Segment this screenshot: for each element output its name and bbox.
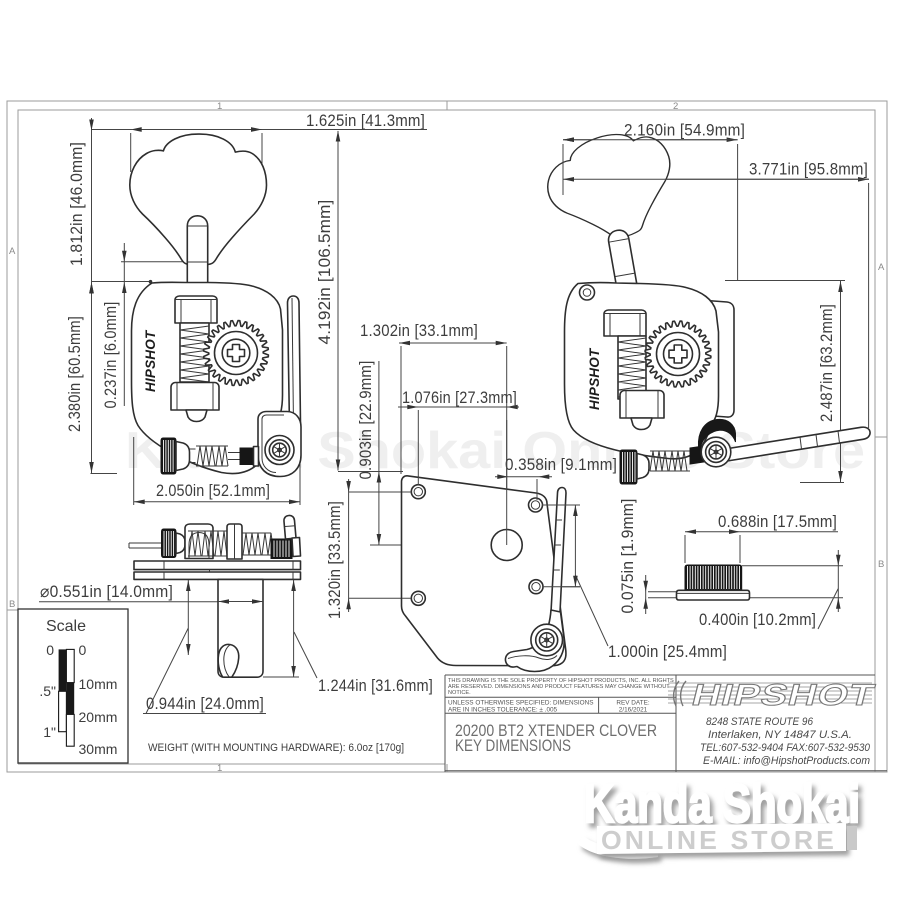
svg-text:1.625in [41.3mm]: 1.625in [41.3mm] (306, 111, 425, 130)
svg-text:KEY DIMENSIONS: KEY DIMENSIONS (455, 736, 571, 755)
svg-text:1.320in [33.5mm]: 1.320in [33.5mm] (325, 501, 344, 619)
svg-text:HIPSHOT: HIPSHOT (143, 329, 158, 392)
svg-text:A: A (878, 262, 885, 273)
svg-text:ARE IN INCHES TOLERANCE: ± .00: ARE IN INCHES TOLERANCE: ± .005 (448, 707, 558, 714)
svg-text:ARE RESERVED. DIMENSIONS AND P: ARE RESERVED. DIMENSIONS AND PRODUCT FEA… (448, 684, 670, 690)
svg-text:0.237in [6.0mm]: 0.237in [6.0mm] (101, 302, 120, 409)
svg-text:0.944in [24.0mm]: 0.944in [24.0mm] (146, 694, 264, 713)
svg-text:1.302in [33.1mm]: 1.302in [33.1mm] (360, 321, 478, 340)
svg-text:WEIGHT (WITH MOUNTING HARDWARE: WEIGHT (WITH MOUNTING HARDWARE): 6.0oz [… (148, 742, 404, 754)
svg-text:1.000in [25.4mm]: 1.000in [25.4mm] (608, 642, 727, 661)
svg-text:3.771in [95.8mm]: 3.771in [95.8mm] (749, 160, 868, 179)
svg-text:0.400in [10.2mm]: 0.400in [10.2mm] (699, 610, 816, 629)
svg-text:1: 1 (217, 763, 222, 774)
svg-text:2.487in [63.2mm]: 2.487in [63.2mm] (817, 304, 836, 422)
svg-text:.5": .5" (39, 683, 56, 699)
svg-text:E-MAIL: info@HipshotProducts.c: E-MAIL: info@HipshotProducts.com (703, 755, 870, 767)
svg-text:ONLINE STORE: ONLINE STORE (601, 825, 837, 855)
svg-text:1.812in [46.0mm]: 1.812in [46.0mm] (67, 142, 86, 266)
svg-text:2.050in [52.1mm]: 2.050in [52.1mm] (156, 481, 270, 500)
svg-text:REV DATE:: REV DATE: (616, 700, 649, 707)
svg-text:1.244in [31.6mm]: 1.244in [31.6mm] (318, 676, 433, 695)
svg-text:B: B (878, 559, 884, 570)
svg-text:4.192in [106.5mm]: 4.192in [106.5mm] (315, 200, 334, 345)
svg-text:0.688in [17.5mm]: 0.688in [17.5mm] (718, 512, 837, 531)
svg-text:B: B (9, 599, 15, 610)
svg-text:0: 0 (46, 642, 54, 658)
svg-text:HIPSHOT: HIPSHOT (587, 347, 602, 410)
svg-text:10mm: 10mm (79, 676, 118, 692)
svg-text:0: 0 (79, 642, 87, 658)
svg-text:1: 1 (217, 101, 222, 112)
svg-text:1.076in [27.3mm]: 1.076in [27.3mm] (402, 388, 517, 407)
svg-text:1": 1" (43, 724, 56, 740)
svg-text:8248 STATE ROUTE 96: 8248 STATE ROUTE 96 (706, 716, 814, 728)
svg-text:20mm: 20mm (79, 709, 118, 725)
svg-text:2/16/2021: 2/16/2021 (619, 707, 648, 714)
svg-text:2.160in [54.9mm]: 2.160in [54.9mm] (624, 121, 745, 140)
svg-text:0.358in [9.1mm]: 0.358in [9.1mm] (505, 455, 617, 474)
svg-text:UNLESS OTHERWISE SPECIFIED: DI: UNLESS OTHERWISE SPECIFIED: DIMENSIONS (448, 700, 593, 707)
svg-text:⌀0.551in [14.0mm]: ⌀0.551in [14.0mm] (40, 582, 173, 601)
svg-text:0.903in [22.9mm]: 0.903in [22.9mm] (356, 361, 375, 480)
svg-text:TEL:607-532-9404 FAX:607-532-9: TEL:607-532-9404 FAX:607-532-9530 (700, 742, 871, 754)
svg-text:A: A (9, 246, 16, 257)
svg-text:HIPSHOT: HIPSHOT (689, 678, 879, 711)
svg-text:2.380in [60.5mm]: 2.380in [60.5mm] (65, 316, 84, 432)
svg-text:Scale: Scale (46, 618, 86, 635)
svg-text:30mm: 30mm (79, 741, 118, 757)
svg-text:2: 2 (673, 101, 678, 112)
svg-text:Interlaken, NY 14847 U.S.A.: Interlaken, NY 14847 U.S.A. (708, 729, 852, 741)
svg-text:0.075in [1.9mm]: 0.075in [1.9mm] (618, 499, 637, 614)
svg-text:NOTICE.: NOTICE. (448, 690, 471, 696)
